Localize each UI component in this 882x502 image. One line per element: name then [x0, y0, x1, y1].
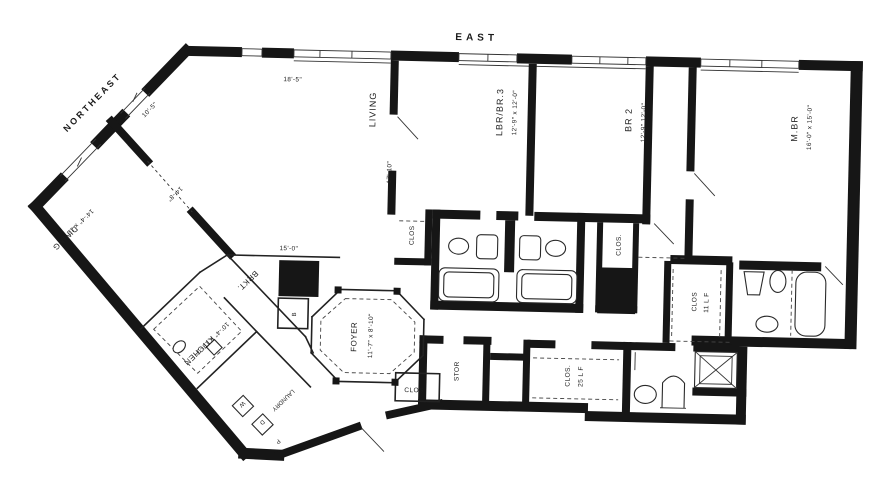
room-mbr: M.BR: [789, 115, 800, 142]
room-laundry: LAUNDRY: [270, 388, 295, 412]
master-bath: [743, 269, 826, 337]
clos-25-size: 25 L F: [577, 366, 584, 387]
dim-lbr-br3: 12'-9" x 12'-0": [511, 90, 519, 135]
dim-brkt-15-0: 15'-0": [279, 245, 298, 252]
laundry-pantry: P: [274, 437, 281, 444]
room-living: LIVING: [367, 92, 378, 128]
washer-dryer: [232, 395, 274, 435]
dim-br2: 12'-9" 12'-0": [640, 103, 648, 143]
dim-living: 17'-10": [386, 161, 394, 184]
floor-plan-drawing: EAST NORTHEAST 10'-5" 18'-5" 14'-8" 15'-…: [0, 0, 882, 502]
room-foyer: FOYER: [349, 322, 359, 352]
clos-shaft: CLOS.: [615, 234, 622, 256]
clos-25-name: CLOS.: [564, 365, 571, 387]
dim-northeast: 10'-5": [141, 101, 159, 119]
dim-wall-14-8: 14'-8": [165, 185, 183, 203]
room-brkt: BRKT.: [236, 269, 260, 293]
clos-master-size: 11 L F: [703, 292, 710, 313]
compass-east: EAST: [455, 32, 498, 44]
clos-foyer: CLOS: [404, 387, 424, 394]
bath2: [516, 235, 578, 303]
room-lbr-br3: LBR/BR.3: [494, 88, 505, 136]
shower: [694, 352, 737, 389]
room-stor: STOR: [454, 361, 461, 381]
shaft-solid: [597, 267, 636, 314]
room-bar: B: [292, 312, 298, 316]
bath1: [438, 234, 500, 302]
bath3: [634, 352, 687, 408]
dim-foyer: 11'-7" x 8'-10": [367, 313, 375, 358]
dim-top: 18'-5": [283, 76, 302, 83]
floor-plan-page: EAST NORTHEAST 10'-5" 18'-5" 14'-8" 15'-…: [0, 0, 882, 502]
dim-mbr: 16'-0" x 15'-0": [806, 105, 814, 150]
interior-walls: [383, 61, 826, 419]
room-br2: BR 2: [623, 108, 634, 132]
clos-master-name: CLOS: [691, 292, 698, 312]
clos-living: CLOS: [409, 225, 416, 245]
dim-dining: 14'-4" x 12'-0": [57, 207, 95, 243]
